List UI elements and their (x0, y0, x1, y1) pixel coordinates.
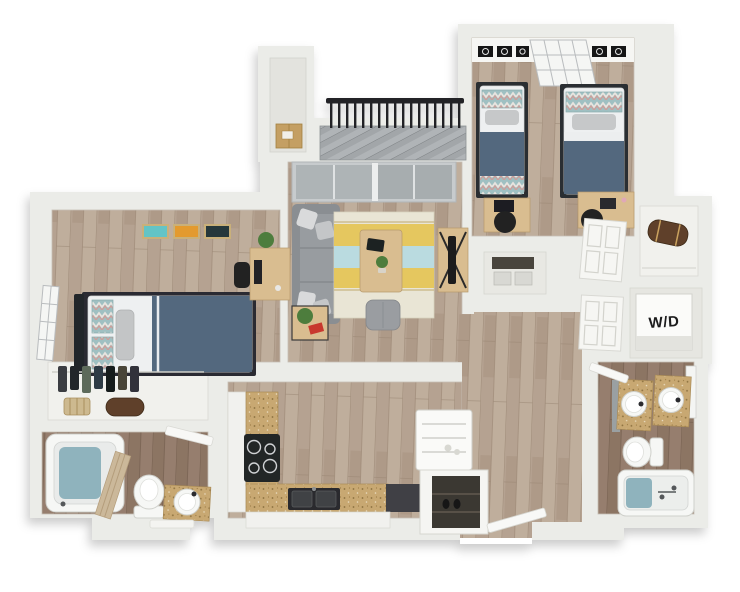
pantry-jar (443, 499, 450, 509)
cabinet-faces-left (228, 392, 246, 512)
duvet (480, 132, 524, 176)
side-table-plant (297, 308, 313, 324)
wall-art-dark (206, 226, 229, 237)
closet-duffel-bag (106, 398, 144, 416)
entry-threshold (460, 538, 532, 544)
storage-closet (276, 124, 302, 148)
sink-faucet (192, 492, 197, 497)
wall-art-row (142, 224, 231, 239)
counter-dark-section (386, 484, 424, 512)
bedroom2-window (530, 40, 596, 86)
closet-doors-upper (579, 218, 626, 281)
desk-accent (622, 198, 627, 203)
pattern-pillow (92, 337, 113, 369)
desk-chair (494, 211, 516, 233)
sink-faucet (676, 398, 681, 403)
gray-pillow (485, 110, 519, 125)
toilet-tank (650, 438, 663, 466)
closet-basket (64, 398, 90, 415)
wall-art-teal (144, 226, 167, 237)
bath-water (59, 447, 101, 499)
twin-bed-left (476, 82, 528, 198)
desk-item (275, 285, 281, 291)
sheet-fold (564, 132, 624, 141)
toilet1 (134, 475, 164, 518)
sofa-pillow (315, 220, 335, 240)
pattern-pillow (482, 90, 522, 108)
vanity1 (163, 485, 211, 521)
bedroom2-desk-left (484, 198, 530, 233)
closet-doors-lower (579, 295, 624, 351)
wall-art-orange (175, 226, 198, 237)
cooktop (244, 434, 280, 482)
closet-stored-items (492, 257, 534, 269)
bath-mat (150, 520, 194, 528)
gray-pillow (116, 310, 134, 360)
twin-bed-right (560, 84, 628, 198)
box-label (282, 131, 293, 139)
tv-console (438, 228, 468, 292)
desk-chair (234, 262, 250, 288)
balcony-deck (320, 126, 466, 160)
floor-plan-svg: W/D (0, 0, 740, 592)
bathtub2 (618, 470, 694, 516)
ottoman (366, 300, 400, 330)
monitor (254, 260, 262, 284)
washer-dryer-front (636, 336, 692, 350)
bedroom1-bed (74, 292, 256, 376)
pattern-pillow (566, 92, 622, 112)
storage-box (494, 272, 511, 285)
laundry-closet: W/D (636, 294, 692, 350)
pantry (420, 470, 488, 534)
toilet2 (623, 437, 663, 467)
plant-pot (378, 268, 386, 273)
foot-throw (480, 176, 524, 194)
monitor (494, 200, 514, 212)
tablet (366, 238, 385, 252)
side-table (292, 306, 328, 340)
kitchen-faucet (312, 487, 316, 491)
double-sink (288, 487, 340, 510)
washer-dryer-label: W/D (648, 313, 680, 332)
sliding-glass-door (292, 162, 456, 202)
balcony (326, 98, 464, 128)
laptop (600, 198, 616, 209)
bedroom1-plant (258, 232, 274, 248)
storage-box (515, 272, 532, 285)
headboard (74, 294, 84, 374)
tv (448, 236, 456, 284)
table-plant (376, 256, 388, 268)
pattern-pillow (92, 300, 113, 333)
tub-faucet (61, 502, 66, 507)
pantry-jar (454, 499, 461, 509)
floor-plan-image: W/D (0, 0, 740, 592)
cabinet-faces-bottom (246, 512, 390, 528)
refrigerator (416, 410, 472, 470)
bath-water (626, 478, 652, 508)
gray-pillow (572, 114, 616, 130)
duvet (152, 296, 252, 372)
coffee-table (360, 230, 402, 292)
duvet (564, 141, 624, 194)
balcony-railing-bar (326, 98, 464, 104)
sink-faucet (639, 402, 644, 407)
